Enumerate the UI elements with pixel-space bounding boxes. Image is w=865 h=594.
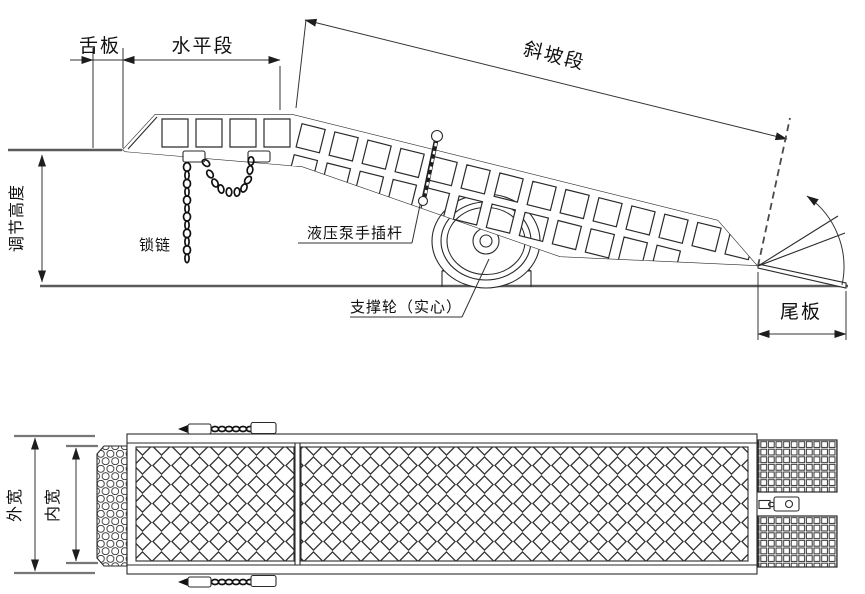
dim-label-inner-width: 内宽: [43, 488, 62, 522]
ramp-technical-drawing: 舌板 水平段 斜坡段 调节高度: [0, 0, 865, 594]
tail-plate-plan-bottom: [758, 516, 837, 567]
dimension-slope-section: 斜坡段: [296, 20, 787, 139]
label-pump-rod: 液压泵手插杆: [307, 224, 403, 242]
chain-anchor-left: [183, 151, 205, 162]
deck-chain-top: [178, 423, 276, 435]
dim-label-tail-plate: 尾板: [780, 301, 822, 323]
tongue-plate-plan: [97, 446, 127, 566]
dim-label-horizontal-section: 水平段: [171, 35, 234, 57]
tail-plate-side: [758, 118, 846, 288]
tail-plate-plan-top: [758, 440, 837, 492]
dimension-tongue-plate: 舌板: [70, 35, 136, 148]
callout-pump-rod: 液压泵手插杆: [298, 205, 420, 243]
drawing-canvas: 舌板 水平段 斜坡段 调节高度: [0, 0, 865, 594]
dimension-adjust-height: 调节高度: [7, 155, 42, 282]
deck-mesh-slope-section: [301, 447, 748, 561]
label-support-wheel: 支撑轮（实心）: [350, 298, 462, 316]
dimension-horizontal-section: 水平段: [123, 35, 280, 110]
dim-label-slope-section: 斜坡段: [521, 38, 587, 75]
tail-raised-dashed-line: [758, 118, 790, 266]
deck-chain-bottom: [178, 576, 276, 588]
plan-view: 外宽 内宽: [5, 423, 837, 588]
dim-label-tongue-plate: 舌板: [79, 35, 121, 57]
dim-label-adjust-height: 调节高度: [7, 184, 26, 252]
dim-label-outer-width: 外宽: [5, 488, 24, 522]
deck-mesh-horizontal-section: [136, 447, 294, 561]
tail-latch: [759, 497, 799, 511]
dimension-inner-width: 内宽: [43, 446, 98, 563]
label-lock-chain: 锁链: [139, 236, 171, 254]
